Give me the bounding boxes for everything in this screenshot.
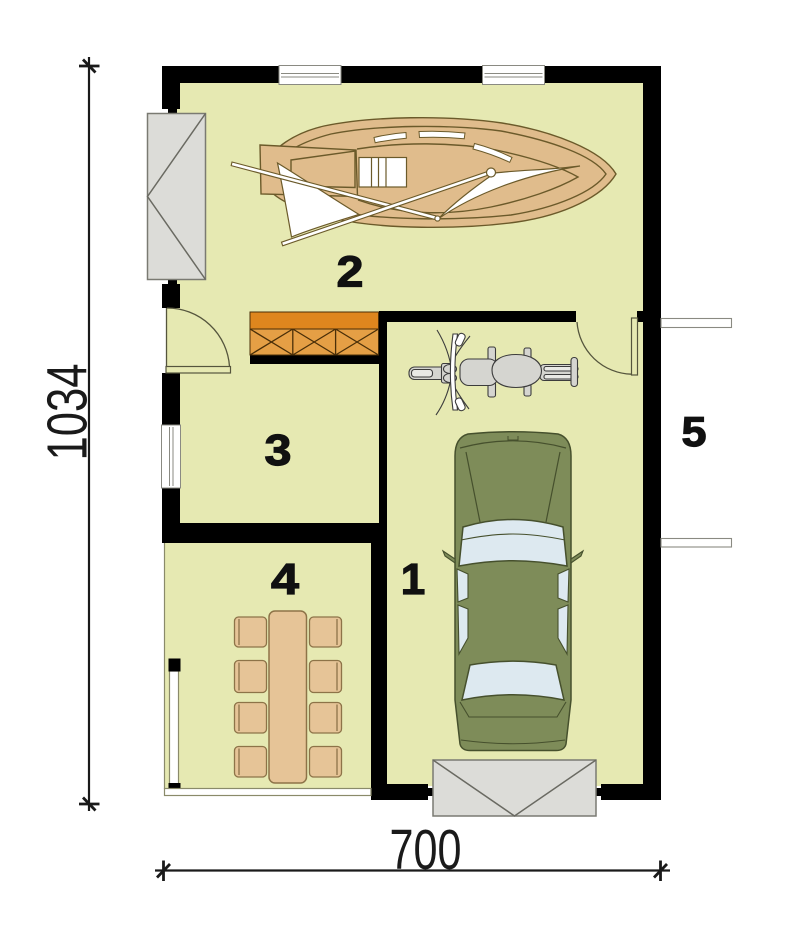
svg-text:700: 700 [390,818,462,882]
svg-text:1034: 1034 [36,364,100,461]
svg-text:3: 3 [265,426,292,475]
svg-text:2: 2 [337,248,364,297]
svg-text:5: 5 [682,408,707,455]
svg-text:4: 4 [271,555,300,604]
svg-text:1: 1 [401,555,425,604]
